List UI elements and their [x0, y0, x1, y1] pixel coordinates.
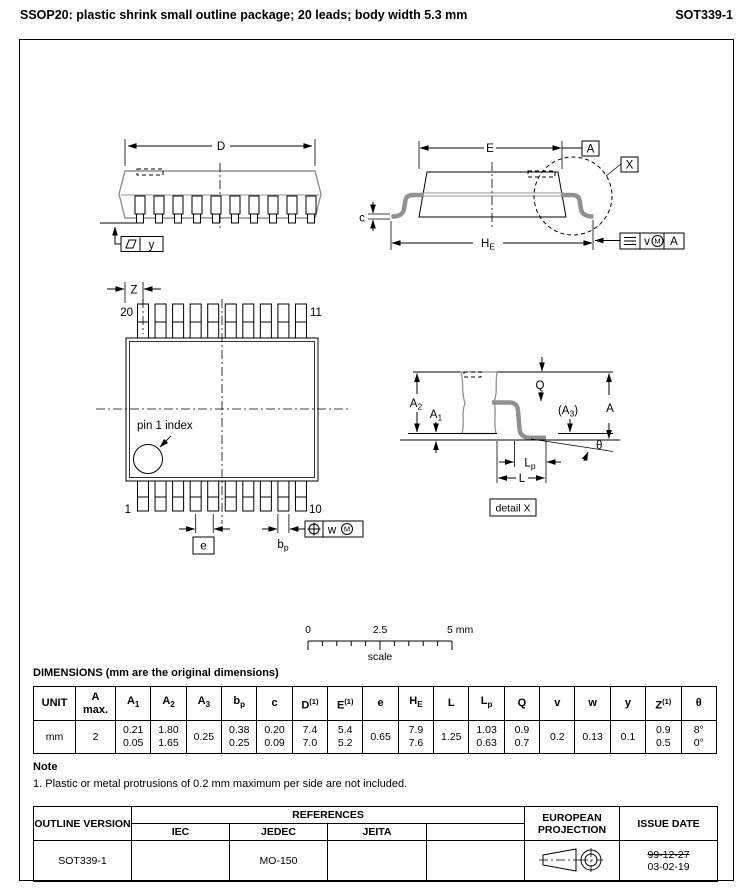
dimensions-body: mm20.210.051.801.650.250.380.250.200.097…	[34, 721, 717, 754]
tol-v-label: v	[644, 236, 650, 248]
right-lead	[561, 195, 594, 217]
detail-x-ref-box: X	[621, 157, 638, 172]
scale-tick-0: 0	[305, 624, 311, 636]
dim-col-header: v	[540, 687, 575, 721]
pin-1-label: 1	[125, 504, 131, 516]
dim-value-cell: 7.97.6	[398, 721, 433, 754]
datum-A-label: A	[587, 144, 595, 156]
flatness-tolerance-frame: y	[121, 237, 163, 252]
dim-col-header: A3	[186, 687, 221, 721]
dimensions-header-row: UNITAmax.A1A2A3bpcD(1)E(1)eHELLpQvwyZ(1)…	[34, 687, 717, 721]
scale-tick-end: 5 mm	[447, 624, 474, 636]
dim-label-A1: A1	[430, 409, 443, 423]
tol-M-label: M	[344, 525, 350, 534]
dim-value-cell: 0.380.25	[222, 721, 257, 754]
dim-value-cell: 1.030.63	[469, 721, 504, 754]
dim-col-header: e	[363, 687, 398, 721]
dim-col-header: A1	[116, 687, 151, 721]
pin-10-label: 10	[309, 504, 322, 516]
dim-col-header: A2	[151, 687, 186, 721]
dim-label-bp: bp	[277, 539, 288, 553]
dim-value-cell: 0.200.09	[257, 721, 292, 754]
pin-20-label: 20	[120, 307, 133, 319]
jeita-value	[328, 841, 427, 882]
left-lead	[392, 195, 425, 217]
dim-col-header: L	[434, 687, 469, 721]
dim-col-header: HE	[398, 687, 433, 721]
issue-date-value: 99-12-27 03-02-19	[620, 841, 718, 882]
dim-value-cell: 0.90.7	[504, 721, 539, 754]
footer-data-row: SOT339-1 MO-150 99-12-27 03-02-19	[34, 841, 718, 882]
dim-label-Z: Z	[130, 285, 137, 297]
dim-value-cell: 0.13	[575, 721, 610, 754]
dim-value-cell: 0.1	[610, 721, 645, 754]
jeita-header: JEITA	[328, 824, 427, 841]
dim-label-Q: Q	[536, 380, 545, 392]
dim-label-L: L	[519, 473, 526, 485]
dim-value-cell: 1.801.65	[151, 721, 186, 754]
scale-bar: 0 2.5 5 mm scale	[305, 624, 473, 663]
dim-value-cell: 7.47.0	[292, 721, 327, 754]
note-heading: Note	[33, 761, 407, 773]
note-block: Note 1. Plastic or metal protrusions of …	[33, 761, 407, 790]
detail-x-view: A2 A1 Q (A3) A θ Lp L	[400, 357, 620, 516]
dim-value-cell: 0.25	[186, 721, 221, 754]
dim-col-header: y	[610, 687, 645, 721]
dim-value-cell: 8°0°	[681, 721, 717, 754]
dim-label-D: D	[217, 141, 225, 153]
scale-tick-mid: 2.5	[373, 624, 388, 636]
seating-plane-tolerance-frame: v M A	[620, 233, 684, 249]
dim-col-header: D(1)	[292, 687, 327, 721]
dim-label-A: A	[606, 403, 614, 415]
side-view: E A c HE	[359, 141, 684, 252]
outline-version-value: SOT339-1	[34, 841, 132, 882]
dim-col-header: bp	[222, 687, 257, 721]
dimensions-value-row: mm20.210.051.801.650.250.380.250.200.097…	[34, 721, 717, 754]
note-item: 1. Plastic or metal protrusions of 0.2 m…	[33, 778, 407, 790]
dim-value-cell: mm	[34, 721, 76, 754]
dim-label-e: e	[200, 541, 206, 553]
issue-date-new: 03-02-19	[620, 861, 717, 873]
iec-value	[132, 841, 230, 882]
perspective-view: D y	[100, 139, 321, 252]
lead-section	[492, 403, 546, 438]
iec-header: IEC	[132, 824, 230, 841]
dim-label-HE: HE	[481, 238, 495, 252]
dim-value-cell: 0.90.5	[646, 721, 681, 754]
dim-col-header: E(1)	[328, 687, 363, 721]
extra-ref-header	[427, 824, 525, 841]
dim-value-cell: 0.210.05	[116, 721, 151, 754]
issue-date-old: 99-12-27	[620, 849, 717, 861]
position-tolerance-frame: w M	[305, 521, 363, 537]
extra-ref-value	[427, 841, 525, 882]
dim-col-header: Q	[504, 687, 539, 721]
datasheet-page: SSOP20: plastic shrink small outline pac…	[0, 0, 750, 895]
dim-value-cell: 1.25	[434, 721, 469, 754]
dim-value-cell: 2	[76, 721, 116, 754]
jedec-header: JEDEC	[230, 824, 328, 841]
dim-col-header: Z(1)	[646, 687, 681, 721]
outline-version-header: OUTLINE VERSION	[34, 807, 132, 841]
jedec-value: MO-150	[230, 841, 328, 882]
issue-date-header: ISSUE DATE	[620, 807, 718, 841]
first-angle-projection-icon	[539, 846, 605, 874]
detail-ref-label: X	[626, 160, 634, 172]
european-projection-header: EUROPEAN PROJECTION	[525, 807, 620, 841]
dimensions-table: UNITAmax.A1A2A3bpcD(1)E(1)eHELLpQvwyZ(1)…	[33, 686, 717, 754]
dimensions-title: DIMENSIONS (mm are the original dimensio…	[33, 667, 279, 679]
dim-col-header: c	[257, 687, 292, 721]
dim-label-A2: A2	[410, 398, 423, 412]
dim-label-Lp: Lp	[524, 458, 535, 472]
references-header: REFERENCES	[132, 807, 525, 824]
dim-value-cell: 0.2	[540, 721, 575, 754]
package-drawings: D y	[0, 0, 750, 665]
tol-datum-label: A	[670, 236, 678, 248]
pin1-index-mark	[134, 445, 163, 474]
tol-w-label: w	[327, 525, 337, 537]
pitch-label-box: e	[193, 537, 214, 554]
european-projection-symbol	[525, 841, 620, 882]
dim-col-header: w	[575, 687, 610, 721]
dim-value-cell: 5.45.2	[328, 721, 363, 754]
dim-label-c: c	[359, 213, 365, 225]
dim-value-cell: 0.65	[363, 721, 398, 754]
tol-M-label: M	[654, 237, 660, 246]
pin-11-label: 11	[310, 307, 322, 319]
scale-caption: scale	[368, 651, 393, 663]
footer-table: OUTLINE VERSION REFERENCES EUROPEAN PROJ…	[33, 806, 718, 882]
dim-label-E: E	[486, 143, 494, 155]
dim-label-A3: (A3)	[558, 405, 578, 419]
datum-A-box: A	[582, 141, 599, 156]
dim-col-header: Lp	[469, 687, 504, 721]
pin1-index-label: pin 1 index	[137, 420, 193, 432]
dim-col-header: Amax.	[76, 687, 116, 721]
dim-label-theta: θ	[596, 440, 602, 452]
footer-header-row-1: OUTLINE VERSION REFERENCES EUROPEAN PROJ…	[34, 807, 718, 824]
body-section	[461, 372, 497, 434]
dim-col-header: UNIT	[34, 687, 76, 721]
top-view: Z 20 11 pin 1 index 1	[96, 282, 363, 554]
dim-col-header: θ	[681, 687, 717, 721]
datum-y-label: y	[149, 240, 155, 252]
detail-x-caption: detail X	[495, 503, 530, 515]
detail-x-caption-box: detail X	[490, 499, 536, 516]
